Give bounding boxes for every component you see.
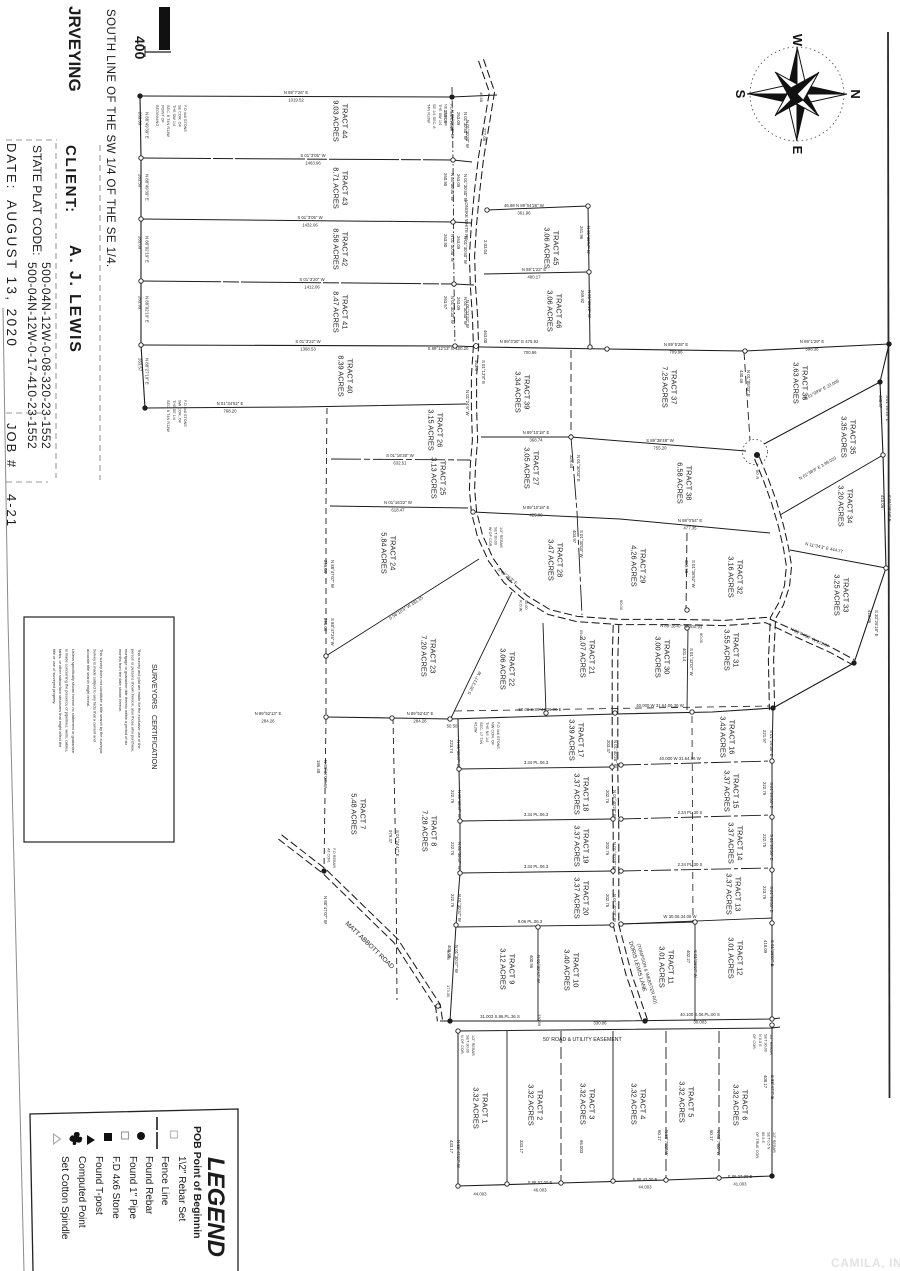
svg-text:TRACT 40: TRACT 40 (346, 359, 355, 394)
svg-text:222.76: 222.76 (450, 790, 455, 804)
svg-text:330.06: 330.06 (537, 1014, 542, 1027)
svg-text:40.000 W 31.64,06 W: 40.000 W 31.64,06 W (659, 756, 702, 761)
svg-text:N 01°30'47" W: N 01°30'47" W (454, 945, 459, 974)
svg-text:DATE:: DATE: (4, 143, 19, 190)
svg-text:A. J. LEWIS: A. J. LEWIS (66, 245, 83, 354)
svg-text:3.34 PL.06.3: 3.34 PL.06.3 (524, 812, 549, 817)
svg-text:N 01°05'03" E: N 01°05'03" E (746, 370, 751, 397)
svg-text:S 01°36'52" W: S 01°36'52" W (691, 560, 696, 589)
svg-text:This survey does not constitut: This survey does not constitute a title … (99, 649, 104, 754)
svg-text:TRACT 37: TRACT 37 (670, 370, 679, 405)
svg-text:46.98: 46.98 (479, 92, 484, 103)
svg-text:60.00: 60.00 (699, 633, 704, 644)
svg-text:S 01°26'38" E: S 01°26'38" E (769, 886, 774, 913)
svg-text:N 89°3'30" E 475.92: N 89°3'30" E 475.92 (500, 339, 539, 344)
svg-text:3.12 ACRES: 3.12 ACRES (499, 948, 508, 990)
svg-text:CAMILA, INC: CAMILA, INC (831, 1256, 900, 1270)
svg-text:TRACT 28: TRACT 28 (556, 543, 565, 578)
svg-text:1/2" REBAR: 1/2" REBAR (499, 527, 503, 548)
svg-text:TRACT 45: TRACT 45 (552, 231, 561, 266)
svg-text:TRACT 2: TRACT 2 (536, 1090, 545, 1121)
svg-text:F.D 4x6 STONE: F.D 4x6 STONE (183, 105, 187, 132)
svg-text:is made concerning the presenc: is made concerning the presence of pipel… (65, 649, 70, 752)
svg-text:632.51: 632.51 (393, 461, 407, 466)
svg-text:F.D 4x6 STONE: F.D 4x6 STONE (183, 400, 187, 427)
svg-text:222.76: 222.76 (450, 842, 455, 856)
svg-text:S 01°24'47" E: S 01°24'47" E (395, 830, 400, 857)
svg-text:N 01°30'47" W: N 01°30'47" W (536, 955, 541, 984)
svg-text:NE COR. OF: NE COR. OF (443, 104, 447, 127)
svg-text:N 01°30'40" W: N 01°30'40" W (450, 173, 455, 202)
svg-text:SEC. 8 T4N R12W: SEC. 8 T4N R12W (166, 400, 170, 432)
svg-text:TRACT 20: TRACT 20 (582, 881, 591, 916)
svg-text:60.17: 60.17 (709, 1130, 714, 1141)
svg-text:398.38: 398.38 (805, 347, 819, 352)
svg-text:263.59: 263.59 (137, 174, 142, 188)
svg-text:TRACT 35: TRACT 35 (849, 420, 858, 455)
svg-text:186.48: 186.48 (316, 760, 321, 774)
svg-text:284.26: 284.26 (413, 719, 427, 724)
svg-text:500-04N-12W-0-17-410-23-1552: 500-04N-12W-0-17-410-23-1552 (25, 262, 39, 449)
svg-text:SET 0.5 N: SET 0.5 N (766, 1132, 770, 1150)
svg-text:433.17: 433.17 (449, 1140, 454, 1154)
svg-text:S 01°3'05" W: S 01°3'05" W (300, 153, 326, 158)
svg-text:N 01°30'57" W: N 01°30'57" W (586, 226, 591, 255)
svg-text:7.20 ACRES: 7.20 ACRES (420, 635, 429, 677)
svg-text:359.90: 359.90 (684, 560, 689, 574)
svg-text:POINT OF: POINT OF (161, 105, 165, 124)
svg-text:3.01 ACRES: 3.01 ACRES (727, 937, 736, 979)
svg-text:3.55 ACRES: 3.55 ACRES (723, 629, 732, 671)
svg-text:299.06: 299.06 (323, 560, 328, 574)
svg-text:50.50: 50.50 (447, 724, 458, 729)
svg-text:S 01°26'07" W: S 01°26'07" W (693, 950, 698, 979)
svg-text:R12W: R12W (474, 722, 478, 733)
svg-text:Found T-post: Found T-post (93, 1156, 104, 1215)
svg-text:263.09: 263.09 (456, 174, 461, 188)
svg-text:Found 1" Pipe: Found 1" Pipe (127, 1156, 138, 1219)
svg-text:F.D 4x6 STONE: F.D 4x6 STONE (449, 104, 453, 131)
svg-text:TRACT 38: TRACT 38 (685, 466, 694, 501)
svg-text:263.57: 263.57 (443, 296, 448, 310)
svg-text:361.96: 361.96 (517, 211, 531, 216)
svg-text:POB Point of Beginnin: POB Point of Beginnin (191, 1126, 203, 1239)
svg-text:Found Rebar: Found Rebar (143, 1156, 154, 1215)
svg-text:9.03 ACRES: 9.03 ACRES (332, 100, 341, 142)
svg-text:3.32 ACRES: 3.32 ACRES (472, 1087, 481, 1129)
svg-text:S 01°30'03" W: S 01°30'03" W (579, 530, 584, 559)
svg-text:3.47 ACRES: 3.47 ACRES (547, 539, 556, 581)
svg-text:S 01°12'8" E: S 01°12'8" E (481, 360, 486, 384)
svg-text:This survey and plat are made: This survey and plat are made for the ex… (137, 649, 142, 749)
svg-text:1/2" REBAR: 1/2" REBAR (471, 1035, 475, 1056)
svg-text:N 89°1'22" E: N 89°1'22" E (522, 267, 547, 272)
svg-text:N 88°47'07" W: N 88°47'07" W (323, 760, 328, 789)
svg-text:425.00: 425.00 (529, 513, 543, 518)
svg-text:400.96: 400.96 (529, 955, 534, 969)
svg-text:TRACT 12: TRACT 12 (736, 941, 745, 976)
svg-text:TRACT 9: TRACT 9 (508, 954, 517, 985)
svg-text:title or use of surveyed prope: title or use of surveyed property. (52, 649, 57, 704)
svg-text:N 88°47'07" W: N 88°47'07" W (323, 896, 328, 925)
svg-text:3.25 ACRES: 3.25 ACRES (833, 574, 842, 616)
svg-text:3.16 ACRES: 3.16 ACRES (727, 556, 736, 598)
svg-text:430.57: 430.57 (878, 395, 883, 409)
svg-text:THE NE 1/4: THE NE 1/4 (485, 722, 489, 742)
svg-text:S 89°12'13" E 180.20: S 89°12'13" E 180.20 (428, 346, 469, 351)
svg-text:40.100 S.06.PL.00 S: 40.100 S.06.PL.00 S (680, 1012, 720, 1017)
svg-text:1432.06: 1432.06 (302, 223, 318, 228)
svg-text:8.39 ACRES: 8.39 ACRES (337, 355, 346, 397)
svg-text:N 01°34'52" E: N 01°34'52" E (217, 401, 244, 406)
svg-text:263.09: 263.09 (137, 236, 142, 250)
svg-text:TRACT 31: TRACT 31 (732, 633, 741, 668)
svg-text:N 01°16'22" W: N 01°16'22" W (384, 500, 413, 505)
svg-text:W OF COR.: W OF COR. (488, 527, 492, 547)
svg-text:6.58 ACRES: 6.58 ACRES (676, 462, 685, 504)
svg-text:TRACT 46: TRACT 46 (555, 294, 564, 329)
svg-text:N 01°30'22" W: N 01°30'22" W (587, 290, 592, 319)
svg-text:accurate title search might re: accurate title search might reveal. (86, 649, 91, 707)
svg-text:4-21: 4-21 (4, 494, 19, 528)
svg-text:3.37 ACRES: 3.37 ACRES (727, 822, 736, 864)
svg-text:3.43 ACRES: 3.43 ACRES (719, 716, 728, 758)
svg-text:402.27: 402.27 (686, 950, 691, 964)
svg-text:3.06 ACRES: 3.06 ACRES (546, 290, 555, 332)
svg-text:50.00 S 89°46'36.00 E: 50.00 S 89°46'36.00 E (519, 707, 562, 712)
svg-text:SET 30.00: SET 30.00 (763, 1034, 767, 1052)
svg-text:404.97: 404.97 (572, 530, 577, 544)
svg-text:298.06: 298.06 (323, 618, 328, 632)
svg-text:N 88°7'00" W: N 88°7'00" W (664, 1130, 669, 1157)
svg-text:S: S (733, 90, 748, 99)
svg-text:3.34 ACRES: 3.34 ACRES (514, 371, 523, 413)
svg-text:3.01 ACRES: 3.01 ACRES (658, 946, 667, 988)
svg-text:TRACT 24: TRACT 24 (389, 536, 398, 571)
svg-text:8.06 PL.06.3: 8.06 PL.06.3 (518, 919, 543, 924)
svg-text:Computed Point: Computed Point (76, 1156, 87, 1228)
svg-text:Unless specifically shown here: Unless specifically shown hereon no stat… (71, 649, 76, 753)
svg-text:S 01°26'38" E: S 01°26'38" E (769, 834, 774, 861)
svg-text:30.003: 30.003 (693, 1020, 707, 1025)
svg-text:1412.06: 1412.06 (304, 285, 320, 290)
svg-text:618.47: 618.47 (391, 508, 405, 513)
svg-text:STATE PLAT CODE:: STATE PLAT CODE: (30, 145, 44, 255)
svg-text:3.37 ACRES: 3.37 ACRES (725, 873, 734, 915)
svg-text:SE COR. OF: SE COR. OF (177, 105, 181, 128)
svg-text:3.34 PL.06.3: 3.34 PL.06.3 (524, 864, 549, 869)
svg-text:408.17: 408.17 (763, 1075, 768, 1089)
svg-text:N 89°52'13" E: N 89°52'13" E (255, 711, 282, 716)
svg-text:44.003: 44.003 (473, 1192, 487, 1197)
svg-text:N 01°30'40" W: N 01°30'40" W (463, 174, 468, 203)
svg-text:N 01°40'28" W: N 01°40'28" W (613, 740, 618, 769)
svg-text:500-04N-12W-0-08-320-23-1552: 500-04N-12W-0-08-320-23-1552 (39, 262, 53, 449)
svg-text:5.84 ACRES: 5.84 ACRES (380, 532, 389, 574)
svg-text:2.34 PL.30 S: 2.34 PL.30 S (678, 862, 703, 867)
svg-text:N 88°27'19" E: N 88°27'19" E (144, 358, 149, 385)
svg-text:TRACT 44: TRACT 44 (341, 104, 350, 139)
svg-text:S 01°26'38" E: S 01°26'38" E (769, 730, 774, 757)
svg-text:N 01°30'47" W: N 01°30'47" W (456, 740, 461, 769)
svg-text:R.O.W.: R.O.W. (518, 600, 522, 612)
svg-text:333.17: 333.17 (519, 1140, 524, 1154)
svg-text:40.000 W 31.64,06.36 W: 40.000 W 31.64,06.36 W (636, 703, 684, 708)
svg-text:50' R: 50' R (755, 470, 760, 479)
svg-text:3.37 ACRES: 3.37 ACRES (573, 773, 582, 815)
svg-text:261.96: 261.96 (579, 226, 584, 240)
svg-text:3.37 ACRES: 3.37 ACRES (723, 770, 732, 812)
svg-text:TRACT 6: TRACT 6 (741, 1090, 750, 1121)
svg-text:SET 30.00: SET 30.00 (493, 527, 497, 545)
svg-text:1\2" Rebar Set: 1\2" Rebar Set (176, 1156, 187, 1221)
svg-text:OF TRUE COR.: OF TRUE COR. (755, 1132, 759, 1159)
svg-text:8.47 ACRES: 8.47 ACRES (332, 291, 341, 333)
svg-text:SET 30.00: SET 30.00 (465, 1035, 469, 1053)
svg-text:N 89°5'28" E: N 89°5'28" E (664, 342, 689, 347)
svg-text:463.0: 463.0 (474, 360, 479, 371)
svg-text:50.00: 50.00 (446, 950, 451, 961)
svg-text:N 01°30'40" W: N 01°30'40" W (465, 120, 470, 149)
svg-text:269.92: 269.92 (580, 290, 585, 304)
svg-text:S 01°3'20" W: S 01°3'20" W (299, 277, 325, 282)
svg-text:418.09: 418.09 (763, 940, 768, 954)
svg-text:TRACT 17: TRACT 17 (577, 723, 586, 758)
svg-text:TRACT 3: TRACT 3 (588, 1089, 597, 1120)
svg-text:TRACT 25: TRACT 25 (439, 461, 448, 496)
svg-text:AT COR.: AT COR. (326, 848, 330, 863)
svg-text:E: E (790, 146, 805, 155)
svg-text:3.63 ACRES: 3.63 ACRES (792, 362, 801, 404)
svg-text:W: W (790, 34, 805, 47)
svg-text:CLIENT:: CLIENT: (62, 145, 79, 214)
svg-text:S 01°26'07" E: S 01°26'07" E (770, 940, 775, 967)
svg-text:S.88.43.00 E: S.88.43.00 E (633, 1177, 658, 1182)
svg-text:TRACT 30: TRACT 30 (663, 640, 672, 675)
svg-text:TRACT 41: TRACT 41 (341, 295, 350, 330)
svg-text:TRACT 14: TRACT 14 (736, 826, 745, 861)
svg-text:TRACT 1: TRACT 1 (481, 1093, 490, 1124)
svg-text:N 01°30'47" W: N 01°30'47" W (457, 790, 462, 819)
svg-text:F.D 4x6 STONE: F.D 4x6 STONE (496, 722, 500, 749)
svg-text:N 01°40'28" W: N 01°40'28" W (612, 894, 617, 923)
svg-text:mortgage or guarantee title th: mortgage or guarantee title thereto with… (124, 649, 129, 745)
svg-text:N 0.5 E: N 0.5 E (758, 1034, 762, 1047)
svg-text:222.75: 222.75 (762, 782, 767, 796)
svg-text:LONOKE WHITE RD: LONOKE WHITE RD (464, 200, 469, 240)
svg-text:223.75: 223.75 (762, 886, 767, 900)
svg-text:TRACT 33: TRACT 33 (842, 578, 851, 613)
svg-text:TRACT 15: TRACT 15 (732, 774, 741, 809)
svg-text:TRACT 23: TRACT 23 (429, 639, 438, 674)
svg-text:222.76: 222.76 (450, 894, 455, 908)
svg-text:months from the date shown her: months from the date shown hereon. (118, 649, 123, 712)
svg-text:TRACT 13: TRACT 13 (734, 877, 743, 912)
svg-text:N 88°7'00" W: N 88°7'00" W (716, 1130, 721, 1157)
svg-text:OF COR.: OF COR. (752, 1034, 756, 1050)
svg-text:3.13 ACRES: 3.13 ACRES (430, 457, 439, 499)
svg-text:N 01°30'03" E: N 01°30'03" E (576, 455, 581, 482)
svg-text:THE SE 1/4: THE SE 1/4 (172, 400, 176, 420)
svg-text:477.35: 477.35 (683, 526, 697, 531)
svg-text:F.D REBAR: F.D REBAR (332, 848, 336, 868)
svg-text:410.06: 410.06 (867, 610, 872, 624)
svg-text:TRACT 26: TRACT 26 (436, 413, 445, 448)
svg-text:1/2" REBAR: 1/2" REBAR (769, 1034, 773, 1055)
svg-text:Fence Line: Fence Line (159, 1156, 170, 1206)
svg-text:TRACT 16: TRACT 16 (728, 720, 737, 755)
svg-text:260.90: 260.90 (443, 173, 448, 187)
svg-text:TRACT 11: TRACT 11 (667, 950, 676, 984)
svg-text:400: 400 (132, 36, 148, 60)
svg-text:N 88°49'39" E: N 88°49'39" E (144, 112, 149, 139)
svg-text:F.D 4x6 Stone: F.D 4x6 Stone (110, 1156, 121, 1219)
svg-text:263.57: 263.57 (137, 358, 142, 372)
svg-text:T4N R12W: T4N R12W (427, 104, 431, 123)
svg-text:SOUTH LINE OF THE SW 1/4 OF TH: SOUTH LINE OF THE SW 1/4 OF THE SE 1/4. (104, 9, 116, 268)
svg-text:5.48 ACRES: 5.48 ACRES (350, 793, 359, 835)
svg-text:3.15 ACRES: 3.15 ACRES (427, 409, 436, 451)
svg-text:377.06: 377.06 (482, 128, 487, 142)
svg-text:8.71 ACRES: 8.71 ACRES (332, 167, 341, 209)
svg-text:N 89°10'18" E: N 89°10'18" E (523, 430, 550, 435)
svg-text:700.96: 700.96 (523, 350, 537, 355)
svg-text:7.25 ACRES: 7.25 ACRES (661, 366, 670, 408)
svg-text:66.003: 66.003 (579, 1140, 584, 1154)
svg-text:TRACT 5: TRACT 5 (687, 1087, 696, 1118)
svg-text:3.05 ACRES: 3.05 ACRES (523, 447, 532, 489)
svg-text:TRACT 32: TRACT 32 (736, 560, 745, 595)
svg-text:N 01°30'47" W: N 01°30'47" W (457, 894, 462, 923)
svg-text:SE 1/4 SEC. 8: SE 1/4 SEC. 8 (432, 104, 436, 128)
svg-text:S 01°3'05" W: S 01°3'05" W (297, 215, 323, 220)
svg-text:222.75: 222.75 (762, 834, 767, 848)
svg-text:S 01°3'22" W: S 01°3'22" W (295, 339, 321, 344)
svg-text:263.09: 263.09 (456, 236, 461, 250)
svg-text:480.17: 480.17 (527, 275, 541, 280)
svg-text:3.35 ACRES: 3.35 ACRES (840, 416, 849, 458)
svg-text:N 01°40'28" W: N 01°40'28" W (612, 790, 617, 819)
svg-text:S.86.27.30 E: S.86.27.30 E (728, 1174, 753, 1179)
svg-text:N 88°47'07" W: N 88°47'07" W (330, 560, 335, 589)
svg-text:Survey is made subject to any: Survey is made subject to any facts that… (93, 649, 98, 742)
svg-text:BEGINNING: BEGINNING (155, 105, 159, 126)
svg-text:S 30°26'18" E: S 30°26'18" E (874, 610, 879, 637)
svg-text:768.20: 768.20 (223, 409, 237, 414)
svg-text:2.34 PL.30 S: 2.34 PL.30 S (678, 810, 703, 815)
svg-text:TRACT 8: TRACT 8 (430, 816, 439, 847)
svg-text:S 01°26'38" E: S 01°26'38" E (769, 782, 774, 809)
svg-text:N 01°24'6" W: N 01°24'6" W (465, 390, 470, 417)
svg-text:S 01°28'18" E: S 01°28'18" E (887, 495, 892, 522)
svg-text:THE SW 1/4: THE SW 1/4 (172, 105, 176, 126)
svg-text:50' ROAD & UTILITY EASEMENT: 50' ROAD & UTILITY EASEMENT (543, 1037, 623, 1043)
svg-text:S 01°16'30" W: S 01°16'30" W (386, 453, 415, 458)
svg-text:284.26: 284.26 (261, 719, 275, 724)
svg-text:263.90: 263.90 (443, 234, 448, 248)
svg-text:N 01°30'47" W: N 01°30'47" W (457, 842, 462, 871)
svg-text:TRACT 10: TRACT 10 (572, 953, 581, 988)
svg-text:THE SW 1/4: THE SW 1/4 (438, 104, 442, 125)
svg-text:3.06 ACRES: 3.06 ACRES (499, 648, 508, 690)
svg-text:3.32 ACRES: 3.32 ACRES (678, 1081, 687, 1123)
svg-text:TRACT 21: TRACT 21 (588, 640, 597, 675)
svg-text:N 89°7'26" E: N 89°7'26" E (284, 90, 309, 95)
svg-text:W 30.06,34.06 W: W 30.06,34.06 W (663, 914, 697, 919)
svg-text:SW COR. OF: SW COR. OF (177, 400, 181, 424)
svg-text:401.14: 401.14 (682, 648, 687, 662)
svg-text:463.00: 463.00 (483, 330, 488, 344)
svg-text:31.003 S.86.PL.36 S: 31.003 S.86.PL.36 S (480, 1014, 520, 1019)
svg-text:S 01°28'18" E: S 01°28'18" E (885, 395, 890, 422)
svg-text:SEC. 8 T4N R12W: SEC. 8 T4N R12W (166, 105, 170, 137)
svg-text:S 01°42'07" W: S 01°42'07" W (689, 648, 694, 677)
svg-text:3.37 ACRES: 3.37 ACRES (573, 825, 582, 867)
svg-text:S 88°47'26" W: S 88°47'26" W (330, 618, 335, 647)
svg-text:3.39 ACRES: 3.39 ACRES (568, 719, 577, 761)
svg-text:202.76: 202.76 (605, 842, 610, 856)
svg-text:N 89°52'43" E: N 89°52'43" E (407, 711, 434, 716)
svg-text:3.34 PL.06.3: 3.34 PL.06.3 (524, 760, 549, 765)
svg-text:SEC. 17 T4N: SEC. 17 T4N (479, 722, 483, 745)
svg-text:203.37: 203.37 (606, 740, 611, 754)
svg-text:Set Cotton Spindle: Set Cotton Spindle (59, 1156, 70, 1240)
svg-text:NW COR. OF: NW COR. OF (490, 722, 494, 746)
svg-text:3.00 ACRES: 3.00 ACRES (654, 636, 663, 678)
svg-text:N 01°12'42" W: N 01°12'42" W (465, 300, 470, 329)
svg-text:N 88°47'07" W: N 88°47'07" W (456, 1140, 461, 1169)
svg-text:410.06: 410.06 (880, 495, 885, 509)
svg-text:368.74: 368.74 (529, 438, 543, 443)
svg-text:person or persons shown hereon: person or persons shown hereon, also tho… (131, 649, 136, 752)
svg-text:330.06: 330.06 (593, 1021, 607, 1026)
svg-text:202.76: 202.76 (605, 790, 610, 804)
svg-text:TRACT 4: TRACT 4 (639, 1089, 648, 1120)
svg-text:1463.96: 1463.96 (305, 161, 321, 166)
svg-text:3.06 ACRES: 3.06 ACRES (543, 227, 552, 269)
svg-text:4.26 ACRES: 4.26 ACRES (630, 545, 639, 587)
svg-text:202.75: 202.75 (605, 894, 610, 908)
svg-text:TRACT 27: TRACT 27 (532, 451, 541, 486)
svg-text:N 88°02'19" E: N 88°02'19" E (144, 296, 149, 323)
svg-text:1/2" REBAR: 1/2" REBAR (772, 1132, 776, 1153)
svg-text:TRACT 43: TRACT 43 (341, 171, 350, 206)
svg-text:50.00: 50.00 (524, 600, 528, 610)
svg-text:N 88°0'54" E: N 88°0'54" E (678, 518, 703, 523)
svg-text:41.003: 41.003 (733, 1182, 747, 1187)
svg-text:N 01°40'28" W: N 01°40'28" W (612, 842, 617, 871)
svg-text:N 01°30'30" W: N 01°30'30" W (450, 234, 455, 263)
svg-text:N: N (848, 89, 863, 98)
svg-text:LEGEND: LEGEND (202, 1157, 229, 1257)
svg-text:3.32 ACRES: 3.32 ACRES (579, 1083, 588, 1125)
svg-text:46.003: 46.003 (533, 1188, 547, 1193)
svg-text:3.40 ACRES: 3.40 ACRES (563, 949, 572, 991)
svg-text:JOB #: JOB # (4, 423, 19, 469)
svg-text:TRACT 22: TRACT 22 (508, 652, 517, 687)
svg-text:TRACT 39: TRACT 39 (523, 375, 532, 410)
svg-text:60.5 E: 60.5 E (761, 1132, 765, 1143)
svg-text:979.37: 979.37 (388, 830, 393, 844)
svg-text:TRACT 19: TRACT 19 (582, 829, 591, 864)
svg-text:221.97: 221.97 (762, 730, 767, 744)
svg-text:263.09: 263.09 (456, 112, 461, 126)
svg-text:S.88.57.00 E: S.88.57.00 E (528, 1180, 553, 1185)
svg-text:223.74: 223.74 (449, 740, 454, 754)
svg-text:N 88°49'39" E: N 88°49'39" E (144, 174, 149, 201)
svg-text:09.04: 09.04 (579, 630, 584, 641)
svg-text:8.58 ACRES: 8.58 ACRES (332, 228, 341, 270)
